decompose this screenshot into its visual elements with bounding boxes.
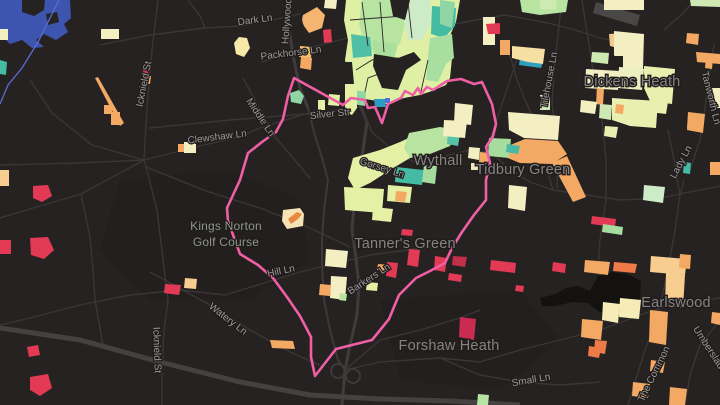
svg-text:Wythall: Wythall <box>414 153 463 169</box>
svg-text:Tanner's Green: Tanner's Green <box>354 236 455 252</box>
svg-text:Kings Norton: Kings Norton <box>190 219 262 233</box>
svg-text:Tidbury Green: Tidbury Green <box>476 162 571 178</box>
svg-text:Earlswood: Earlswood <box>641 295 711 311</box>
svg-text:Golf Course: Golf Course <box>193 235 259 249</box>
svg-text:Dickens Heath: Dickens Heath <box>584 74 681 90</box>
svg-text:Forshaw Heath: Forshaw Heath <box>399 338 500 354</box>
svg-text:Icknield St: Icknield St <box>150 327 163 374</box>
